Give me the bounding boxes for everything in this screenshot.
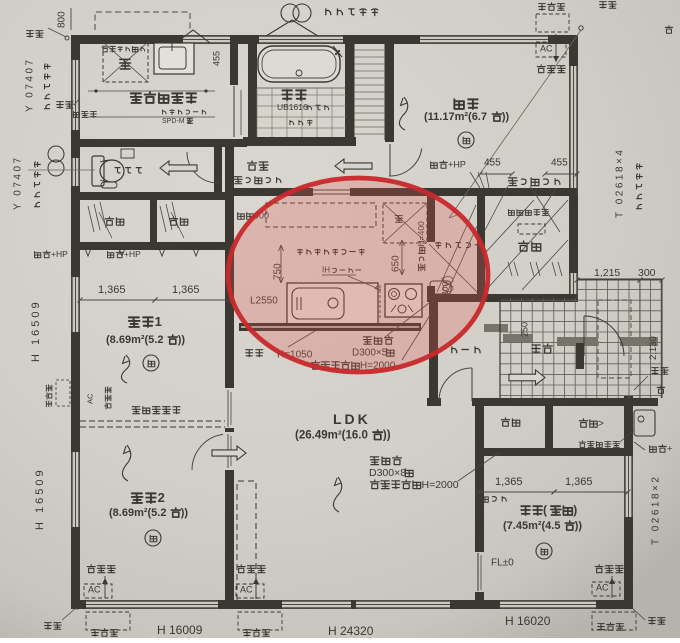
svg-text:)): )) xyxy=(575,520,583,532)
svg-text:250: 250 xyxy=(520,322,530,337)
svg-text:1,365: 1,365 xyxy=(98,284,126,296)
svg-text:T 02618×4: T 02618×4 xyxy=(614,148,625,218)
svg-text:(: ( xyxy=(543,503,547,517)
svg-text:H 16020: H 16020 xyxy=(505,614,551,628)
svg-text:455: 455 xyxy=(212,51,222,66)
svg-text:H 16509: H 16509 xyxy=(30,299,42,362)
svg-text:AC: AC xyxy=(88,585,101,595)
svg-text:1,365: 1,365 xyxy=(172,284,200,296)
svg-text:AC: AC xyxy=(596,583,609,593)
svg-text:)): )) xyxy=(502,111,510,123)
svg-text:455: 455 xyxy=(484,157,501,168)
svg-text:H 24320: H 24320 xyxy=(328,624,374,638)
svg-text:)): )) xyxy=(178,334,186,346)
svg-text:): ) xyxy=(573,503,577,517)
svg-text:300: 300 xyxy=(638,267,656,279)
svg-text:1,215: 1,215 xyxy=(594,267,620,279)
svg-text:Y 07407: Y 07407 xyxy=(24,57,35,112)
svg-text:1: 1 xyxy=(155,314,162,329)
svg-text:+HP: +HP xyxy=(448,160,466,170)
svg-text:D300×8: D300×8 xyxy=(369,467,406,479)
svg-text:1,365: 1,365 xyxy=(565,476,593,488)
svg-text:FL±0: FL±0 xyxy=(491,557,514,568)
svg-text:455: 455 xyxy=(551,157,568,168)
svg-text:800: 800 xyxy=(56,11,67,28)
svg-text:+HP: +HP xyxy=(51,249,68,259)
svg-text:1,365: 1,365 xyxy=(495,476,523,488)
svg-text:(11.17m²(6.7: (11.17m²(6.7 xyxy=(424,111,487,123)
svg-text:AC: AC xyxy=(240,585,253,595)
svg-text:SPD-M 2: SPD-M 2 xyxy=(162,118,191,125)
svg-text:2,130: 2,130 xyxy=(648,336,659,360)
svg-text:Y 07407: Y 07407 xyxy=(12,155,23,210)
svg-text:AC: AC xyxy=(85,393,94,404)
svg-text:T 02618×2: T 02618×2 xyxy=(650,475,661,545)
svg-text:+HP: +HP xyxy=(124,249,141,259)
svg-text:AC: AC xyxy=(540,44,553,54)
svg-text:H 16509: H 16509 xyxy=(34,467,46,530)
svg-text:H 16009: H 16009 xyxy=(157,623,203,637)
svg-text:(26.49m²(16.0: (26.49m²(16.0 xyxy=(295,430,368,442)
svg-text:LDK: LDK xyxy=(333,411,371,427)
svg-text:>: > xyxy=(598,418,604,429)
svg-text:(8.69m²(5.2: (8.69m²(5.2 xyxy=(109,507,166,519)
svg-text:)): )) xyxy=(181,507,189,519)
svg-text:+: + xyxy=(667,444,672,454)
svg-text:(7.45m²(4.5: (7.45m²(4.5 xyxy=(503,520,560,532)
svg-text:UB1616: UB1616 xyxy=(277,102,308,112)
svg-text:)): )) xyxy=(383,430,391,442)
svg-text:2: 2 xyxy=(158,490,165,505)
svg-text:(8.69m²(5.2: (8.69m²(5.2 xyxy=(106,334,163,346)
svg-text:H=2000: H=2000 xyxy=(422,479,459,491)
